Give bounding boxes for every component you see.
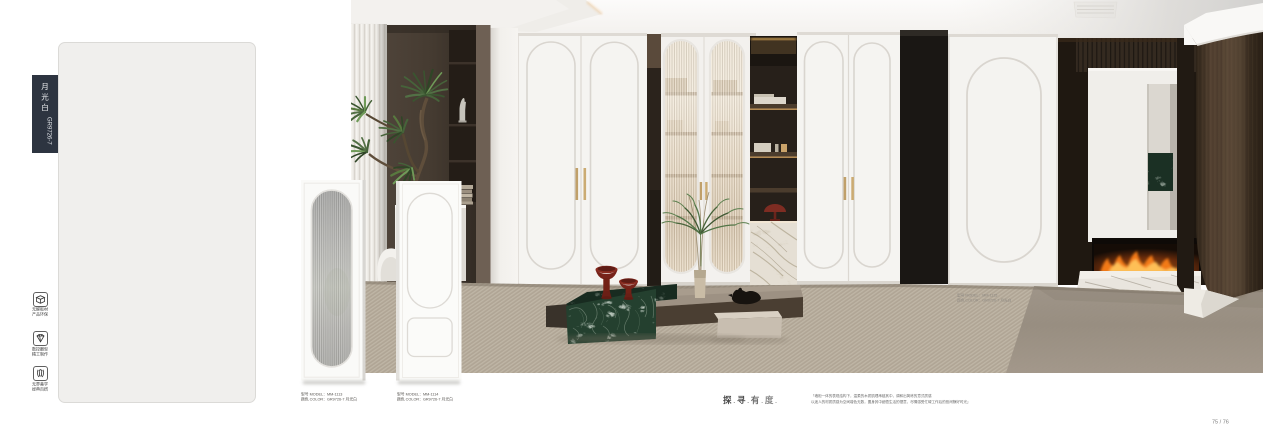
svg-text:光: 光	[41, 92, 49, 102]
svg-text:月: 月	[41, 82, 49, 91]
svg-text:白: 白	[41, 102, 49, 112]
svg-text:GR9726-7: GR9726-7	[46, 117, 52, 145]
